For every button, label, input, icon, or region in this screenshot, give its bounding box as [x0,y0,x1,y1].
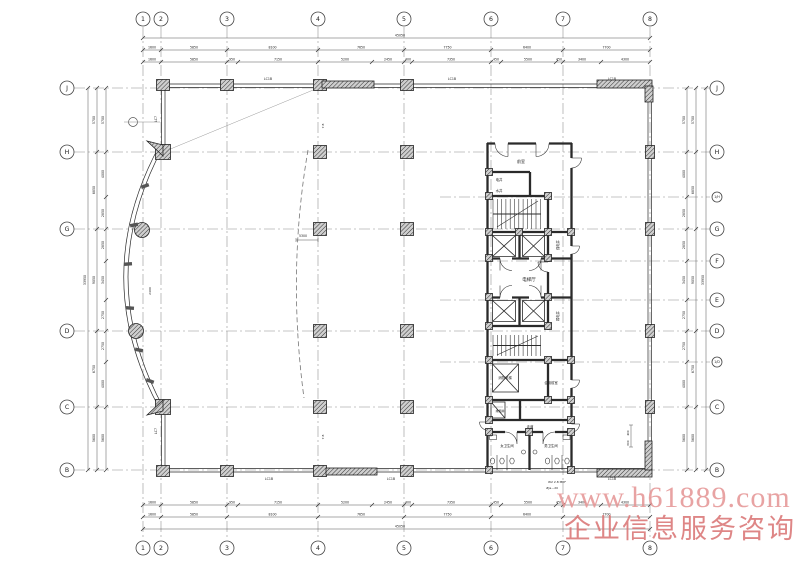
grid-bubble-label: H [715,149,720,156]
dimension-label: 33950 [83,275,87,285]
room-label: 前室 [517,158,525,164]
core-column [486,397,493,404]
column [401,223,414,236]
dimension-label: 7350 [447,501,455,505]
dimension-label: 4000 [682,380,686,388]
dimension-label: 5850 [190,513,198,517]
column [401,80,414,91]
dimension-label: 5200 [341,501,349,505]
dimension-label: 7750 [443,513,451,517]
grid-bubble-label: H [65,149,70,156]
dimension-label: 2750 [682,342,686,350]
dimension-label: 1600 [148,513,156,517]
column [221,466,234,477]
dimension-label: 5850 [190,46,198,50]
dimension-label: 5600 [691,434,695,442]
core-column [568,417,575,424]
dimension-label: 7700 [602,513,610,517]
annotation-tag: 5300 [299,234,307,238]
column [646,223,655,236]
dimension-label: 9050 [92,276,96,284]
dimension-label: 5700 [92,116,96,124]
grid-bubble-label: F [715,258,719,265]
annotation-tag: 400 [626,430,630,436]
room-label: 电井 [496,177,503,182]
annotation-tag: 7.8 [321,435,325,440]
grid-bubble-label: 5 [402,16,406,23]
dimension-label: 2850 [101,209,105,217]
wall-beam [645,86,653,102]
dimension-label: 5600 [682,434,686,442]
grid-bubble-label: E [715,297,719,304]
annotation-tag: 2400 [148,287,152,295]
grid-bubble-label: 6 [489,16,493,23]
column [314,401,327,414]
grid-bubble-label: 2 [159,16,163,23]
diagonal-guide-line [168,88,318,150]
column [401,401,414,414]
core-column [486,229,493,236]
dimension-label: 6400 [523,46,531,50]
dimension-label: 6750 [92,365,96,373]
dimension-label: 950 [229,58,235,62]
dimension-label: 5850 [190,58,198,62]
annotation-tag: #Ja—20 [546,486,558,490]
core-column [568,467,575,474]
annotation-tag: 7.8 [321,124,325,129]
grid-bubble-label: 7 [561,545,565,552]
dimension-label: 5700 [682,116,686,124]
dimension-label: 450 [493,58,499,62]
core-column [545,229,552,236]
curtain-wall-mullion [135,348,144,353]
room-label: 合用前室 [544,380,558,385]
dimension-label: 2850 [682,209,686,217]
room-label: 排烟井 [495,408,504,413]
wall-beam [597,469,652,477]
column [401,466,414,477]
grid-bubble-label: J [65,85,68,92]
dimension-label: 1600 [148,58,156,62]
grid-bubble-label: 2 [159,545,163,552]
dimension-label: 1600 [148,501,156,505]
grid-bubble-label: G [715,226,720,233]
grid-bubble-label: 8 [648,16,652,23]
core-column [526,429,533,436]
dimension-label: 8100 [268,513,276,517]
column [314,325,327,338]
core-column [568,229,575,236]
round-column [129,324,144,339]
dimension-label: 3400 [578,58,586,62]
dimension-label: 9050 [691,276,695,284]
dimension-label: 3400 [578,501,586,505]
wall-beam [322,81,374,88]
dimension-label: 5500 [524,501,532,505]
grid-bubble-label: 1 [141,545,145,552]
core-column [545,294,552,301]
column [646,401,655,414]
dimension-label: 2450 [384,501,392,505]
columns-layer [124,80,655,478]
annotation-tag: LC1B [608,77,616,81]
dimension-label: 5700 [691,116,695,124]
wall-beam [326,468,377,475]
grid-bubble-label: 6 [489,545,493,552]
dimension-label: 3450 [101,276,105,284]
annotation-tag: LC1B [448,77,456,81]
annotation-tag: LC7 [154,116,158,122]
room-label: 水井 [496,188,503,193]
grid-bubble-label: 4 [316,545,320,552]
annotation-tag: LC1B [387,477,395,481]
room-label: 电梯厅 [522,276,536,283]
core-column [486,467,493,474]
grid-bubble-label: 8 [648,545,652,552]
dimension-label: 1600 [148,46,156,50]
dimension-label: 5700 [101,116,105,124]
grid-bubble-label: 3 [225,545,229,552]
core-column [545,357,552,364]
dimension-label: 4000 [101,380,105,388]
room-label: 男卫生间 [544,443,558,448]
core-column [486,417,493,424]
grid-bubble-label: C [715,404,719,411]
dimension-label: 400 [405,58,411,62]
core-column [486,429,493,436]
dimension-label: 450 [556,501,562,505]
dimension-label: 2450 [384,58,392,62]
core-column [486,357,493,364]
dimension-label: 5600 [101,434,105,442]
curtain-wall-mullion [126,306,134,310]
dimension-label: 5500 [524,58,532,62]
core-column [568,429,575,436]
room-label: 消防电梯 [498,375,512,380]
dimension-label: 2750 [101,311,105,319]
annotation-tag: W2 2.8 MRF [548,480,566,484]
dimension-layer: 4505016005850810076507750640077001600585… [83,34,708,532]
column [401,325,414,338]
core-column [545,193,552,200]
room-label: 女卫生间 [500,443,514,448]
dimension-label: 4300 [621,58,629,62]
dimension-label: 33950 [701,275,705,285]
wall-beam [597,80,652,88]
dimension-label: 450 [556,58,562,62]
dimension-label: 6400 [523,513,531,517]
core-column [486,193,493,200]
dimension-label: 2850 [682,241,686,249]
column [314,466,327,477]
column [314,146,327,159]
dimension-label: 4300 [621,501,629,505]
core-column [545,397,552,404]
annotation-tag: 600 [626,440,630,446]
core-column [568,397,575,404]
core-column [486,294,493,301]
core-column [486,323,493,330]
floor-plan-canvas: 1122334455667788JJHH1/HGGFEDD1/DCCBB 450… [0,0,799,568]
column [221,80,234,91]
grid-bubble-label: 1 [141,16,145,23]
grid-bubble-label: C [65,404,69,411]
annotation-tag: LC1B [264,77,272,81]
grid-bubble-label: B [715,467,719,474]
annotation-tag: LC1B [608,477,616,481]
dimension-label: 6850 [92,186,96,194]
dimension-label: 7650 [357,46,365,50]
dimension-label: 7350 [447,58,455,62]
dimension-label: 5200 [341,58,349,62]
column [401,146,414,159]
grid-bubble-label: 7 [561,16,565,23]
labels-layer: 前室电井水井电梯厅强电井弱电井消防电梯合用前室排烟井走道女卫生间男卫生间LC1B… [148,77,630,490]
small-dim-line [296,238,318,242]
dashed-interior-arc [296,150,308,398]
dimension-label: 2850 [101,241,105,249]
dimension-label: 7750 [443,46,451,50]
dimension-label: 7700 [602,46,610,50]
grid-bubble-label: 3 [225,16,229,23]
grid-bubble-label: D [715,328,720,335]
grid-bubble-label: J [715,85,718,92]
grid-bubble-label: 1/D [714,360,720,364]
annotation-tag: LC7 [154,428,158,434]
core-column [545,255,552,262]
room-label: 弱电井 [555,310,560,321]
dimension-label: 4000 [682,170,686,178]
core-column [486,255,493,262]
dimension-label: 8100 [268,46,276,50]
grid-bubble-label: G [65,226,70,233]
dimension-label: 6750 [691,365,695,373]
dimension-label: 45050 [395,34,405,38]
column [157,80,170,91]
grid-bubble-label: 5 [402,545,406,552]
dimension-label: 950 [229,501,235,505]
dimension-label: 5600 [92,434,96,442]
column [314,223,327,236]
wall-beam [645,441,652,470]
dimension-label: 6850 [691,186,695,194]
column [157,466,170,477]
column [646,325,655,338]
dimension-label: 2750 [101,342,105,350]
dimension-label: 5850 [190,501,198,505]
annotation-tag: LC1B [265,477,273,481]
curtain-wall-mullion [124,262,132,266]
dimension-label: 7150 [274,501,282,505]
grid-bubble-label: 1/H [714,195,720,199]
core-column [516,229,523,236]
dimension-label: 3450 [682,276,686,284]
dimension-label: 7150 [274,58,282,62]
core-column [486,169,493,176]
dimension-label: 7650 [357,513,365,517]
room-label: 强电井 [555,239,560,250]
grid-bubble-label: 4 [316,16,320,23]
grid-bubble-label: B [65,467,69,474]
building-walls [124,84,652,472]
grid-bubble-label: D [65,328,70,335]
dimension-label: 4000 [101,170,105,178]
dimension-label: 450 [493,501,499,505]
column [646,146,655,159]
dimension-label: 45050 [395,525,405,529]
dimension-label: 2750 [682,311,686,319]
core-column [568,357,575,364]
core-column [545,323,552,330]
dimension-label: 400 [405,501,411,505]
floor-plan-page: 1122334455667788JJHH1/HGGFEDD1/DCCBB 450… [0,0,799,568]
room-label: 走道 [527,424,534,429]
